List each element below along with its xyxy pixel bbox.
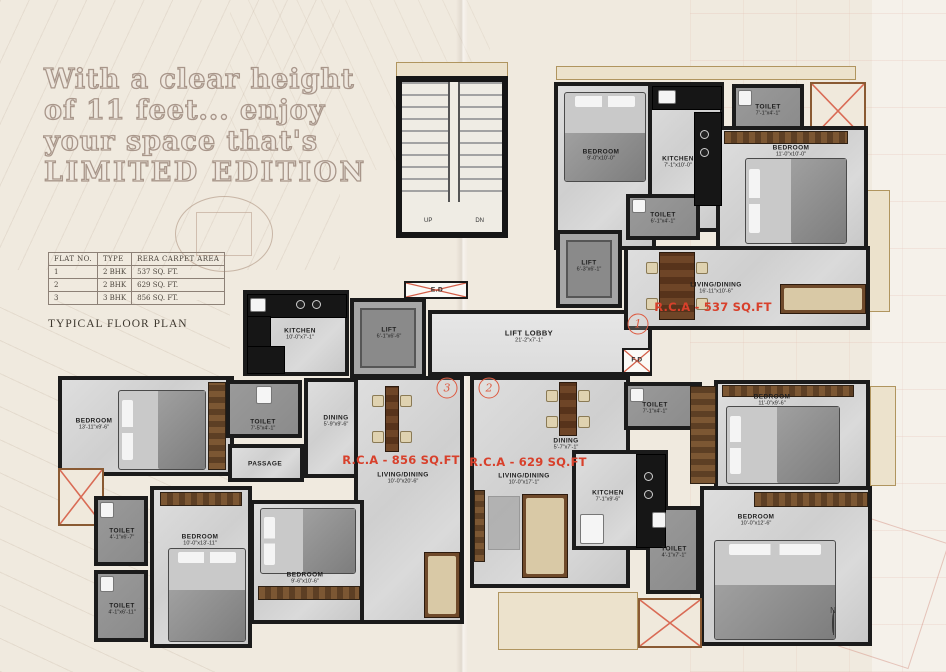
label-toilet-3: TOILET 7'-5"x4'-1" — [250, 419, 275, 432]
col-flat-no: FLAT NO. — [49, 253, 98, 266]
ed-label: E.D — [431, 287, 443, 294]
tv-unit — [474, 490, 485, 562]
kitchen-counter — [636, 454, 666, 548]
kitchen-sink — [250, 298, 266, 312]
label-bedroom-5: BEDROOM 9'-6"x10'-6" — [287, 572, 324, 585]
stair-treads — [402, 82, 448, 198]
hob-burner — [644, 472, 653, 481]
bed — [714, 540, 836, 640]
washbasin — [632, 199, 646, 213]
rca-flat-3: R.C.A - 856 SQ.FT — [342, 453, 459, 467]
label-bedroom-2: BEDROOM 11'-0"x10'-0" — [773, 145, 810, 158]
staircase: UP DN — [396, 76, 508, 238]
flat-area-table: FLAT NO. TYPE RERA CARPET AREA 1 2 BHK 5… — [48, 252, 225, 305]
label-bedroom-7: BEDROOM 10'-0"x12'-6" — [738, 514, 775, 527]
cell-type: 2 BHK — [97, 266, 131, 279]
plan-title: TYPICAL FLOOR PLAN — [48, 318, 188, 330]
tagline-line: LIMITED EDITION — [44, 157, 367, 188]
dining-set — [372, 386, 412, 452]
chair — [372, 431, 384, 443]
dining-set — [546, 382, 590, 436]
label-toilet-6: TOILET 7'-1"x4'-1" — [642, 402, 667, 415]
bed — [745, 158, 847, 244]
hob-burner — [312, 300, 321, 309]
wardrobe — [724, 131, 848, 144]
label-toilet-4: TOILET 4'-1"x6'-7" — [109, 528, 134, 541]
hob-burner — [644, 490, 653, 499]
flat-marker-1: 1 — [628, 314, 649, 335]
label-lift-2: LIFT 6'-1"x6'-6" — [377, 327, 402, 340]
washbasin — [738, 90, 752, 106]
label-bedroom-4: BEDROOM 10'-0"x13'-11" — [182, 534, 219, 547]
kitchen-counter — [247, 346, 285, 374]
tagline-line: of 11 feet... enjoy — [44, 95, 367, 126]
chair — [546, 390, 558, 402]
brochure-page: With a clear height of 11 feet... enjoy … — [0, 0, 946, 672]
label-dining-2: DINING 5'-7"x7'-1" — [553, 438, 578, 451]
bed — [726, 406, 840, 484]
stair-dn-label: DN — [475, 218, 484, 224]
deck — [870, 386, 896, 486]
chair — [696, 262, 708, 274]
col-type: TYPE — [97, 253, 131, 266]
kitchen-counter — [694, 112, 722, 206]
wardrobe — [208, 382, 226, 470]
flat-marker-3: 3 — [437, 378, 458, 399]
wardrobe — [258, 586, 360, 600]
dining-table — [559, 382, 577, 436]
tagline-line: With a clear height — [44, 64, 367, 95]
label-kitchen-2: KITCHEN 7'-1"x9'-6" — [592, 490, 624, 503]
washbasin — [100, 502, 114, 518]
washbasin — [652, 512, 666, 528]
table-row: 1 2 BHK 537 SQ. FT. — [49, 266, 225, 279]
label-bedroom-1: BEDROOM 9'-0"x10'-0" — [583, 149, 620, 162]
tagline: With a clear height of 11 feet... enjoy … — [44, 64, 367, 188]
cell-area: 629 SQ. FT. — [132, 279, 225, 292]
label-toilet-5: TOILET 4'-1"x6'-11" — [108, 603, 135, 616]
rca-flat-1: R.C.A - 537 SQ.FT — [654, 300, 771, 314]
label-kitchen-3: KITCHEN 10'-0"x7'-1" — [284, 328, 316, 341]
label-toilet-2: TOILET 6'-1"x4'-1" — [650, 212, 675, 225]
paper-right-panel — [872, 0, 946, 672]
deck — [498, 592, 638, 650]
hob-burner — [700, 148, 709, 157]
washbasin — [256, 386, 272, 404]
label-lift-1: LIFT 6'-3"x6'-1" — [577, 260, 602, 273]
chair — [578, 416, 590, 428]
hob-burner — [700, 130, 709, 139]
cell-flat: 2 — [49, 279, 98, 292]
cell-area: 856 SQ. FT. — [132, 292, 225, 305]
label-toilet-1: TOILET 7'-1"x4'-1" — [755, 104, 780, 117]
cell-type: 2 BHK — [97, 279, 131, 292]
bed — [564, 92, 646, 182]
chair — [578, 390, 590, 402]
kitchen-sink — [658, 90, 676, 104]
bed — [118, 390, 206, 470]
dining-table — [385, 386, 399, 452]
label-passage: PASSAGE — [248, 461, 282, 468]
cell-type: 3 BHK — [97, 292, 131, 305]
stair-divider — [448, 82, 460, 202]
sofa — [522, 494, 568, 578]
compass-icon — [832, 614, 834, 633]
cell-flat: 1 — [49, 266, 98, 279]
sofa — [424, 552, 460, 618]
col-rera: RERA CARPET AREA — [132, 253, 225, 266]
washbasin — [100, 576, 114, 592]
flat-marker-2: 2 — [479, 378, 500, 399]
wardrobe — [690, 386, 716, 484]
wardrobe — [160, 492, 242, 506]
hob-burner — [296, 300, 305, 309]
table-header-row: FLAT NO. TYPE RERA CARPET AREA — [49, 253, 225, 266]
fridge — [580, 514, 604, 544]
wardrobe — [754, 492, 868, 507]
label-living-1: LIVING/DINING 16'-11"x10'-6" — [690, 282, 741, 295]
chair — [372, 395, 384, 407]
void-box — [638, 598, 702, 648]
chair — [400, 431, 412, 443]
label-living-2: LIVING/DINING 10'-0"x17'-1" — [498, 473, 549, 486]
cell-area: 537 SQ. FT. — [132, 266, 225, 279]
rug — [488, 496, 520, 550]
cross-marks — [640, 600, 700, 646]
chair — [646, 262, 658, 274]
stair-treads — [456, 82, 502, 198]
label-bedroom-3: BEDROOM 13'-11"x9'-6" — [76, 418, 113, 431]
fd-label: F.D — [631, 357, 642, 364]
rca-flat-2: R.C.A - 629 SQ.FT — [469, 455, 586, 469]
label-lift-lobby: LIFT LOBBY 21'-2"x7'-1" — [505, 329, 553, 344]
table-row: 3 3 BHK 856 SQ. FT. — [49, 292, 225, 305]
chair — [400, 395, 412, 407]
label-kitchen-1: KITCHEN 7'-1"x10'-0" — [662, 156, 694, 169]
bed — [260, 508, 356, 574]
stair-up-label: UP — [424, 218, 432, 224]
label-living-3: LIVING/DINING 10'-0"x20'-6" — [377, 472, 428, 485]
bed — [168, 548, 246, 642]
cell-flat: 3 — [49, 292, 98, 305]
tagline-line: your space that's — [44, 126, 367, 157]
blueprint-table-decor — [196, 212, 252, 256]
label-bedroom-6: BEDROOM 11'-0"x9'-6" — [754, 394, 791, 407]
label-toilet-7: TOILET 4'-1"x7'-1" — [661, 546, 686, 559]
sofa — [780, 284, 866, 314]
washbasin — [630, 388, 644, 402]
label-dining-3: DINING 5'-9"x9'-6" — [323, 415, 348, 428]
chair — [546, 416, 558, 428]
north-indicator: N — [824, 606, 842, 633]
deck — [556, 66, 856, 80]
table-row: 2 2 BHK 629 SQ. FT. — [49, 279, 225, 292]
